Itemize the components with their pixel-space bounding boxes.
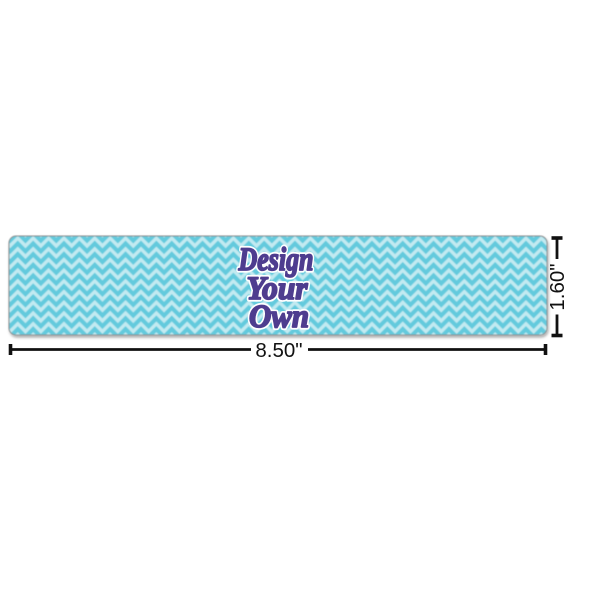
svg-text:8.50": 8.50" [255, 339, 302, 362]
svg-text:Own: Own [249, 299, 309, 335]
svg-text:1.60": 1.60" [546, 263, 569, 310]
